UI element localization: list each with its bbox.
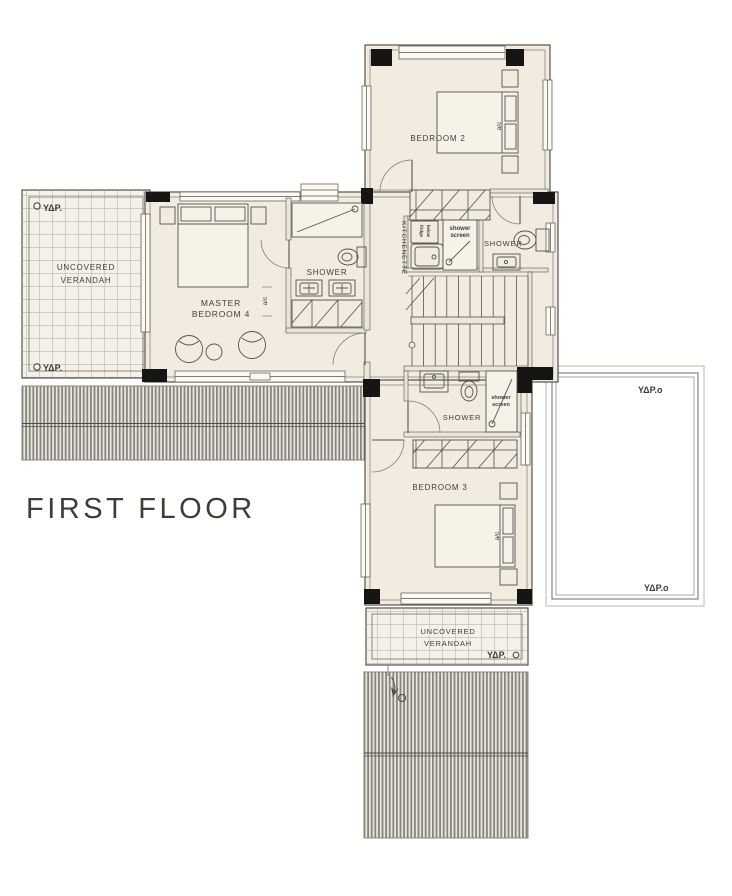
- shower-screen-label-2: screen: [492, 402, 510, 408]
- hydro-label-roof-bottom: ΥΔΡ.ο: [644, 583, 669, 593]
- verandah-left-label-1: UNCOVERED: [57, 263, 115, 272]
- page-title: FIRST FLOOR: [26, 493, 256, 525]
- window: [543, 80, 552, 150]
- shower-screen-label-2: screen: [450, 233, 470, 239]
- window: [401, 593, 491, 604]
- appliance-note-2: below: [426, 225, 431, 238]
- shower-screen-label-1: shower: [491, 395, 511, 401]
- hydro-label-left-top: ΥΔΡ.: [43, 203, 62, 213]
- stair-handrail: [411, 317, 504, 324]
- bottom-deck: [364, 644, 528, 838]
- window: [180, 192, 300, 201]
- ac-label-bed3: a/c: [494, 531, 501, 540]
- verandah-bottom-label-2: VERANDAH: [424, 639, 472, 648]
- hydro-label-roof-top: ΥΔΡ.ο: [638, 385, 663, 395]
- shower-label-bed3: SHOWER: [443, 413, 482, 422]
- window: [399, 46, 505, 59]
- hydro-label-verandah-bottom: ΥΔΡ.: [487, 650, 506, 660]
- left-deck: [22, 386, 368, 460]
- bedroom3-label: BEDROOM 3: [412, 483, 467, 492]
- wardrobe-master: [292, 300, 362, 327]
- window: [362, 86, 371, 150]
- master-bedroom-label-1: MASTER: [201, 298, 241, 308]
- shower-label-bed2: SHOWER: [484, 239, 523, 248]
- hydro-label-left-bottom: ΥΔΡ.: [43, 363, 62, 373]
- bottom-verandah: UNCOVERED VERANDAH ΥΔΡ.: [366, 608, 528, 665]
- window: [361, 504, 370, 577]
- shower-screen-label-1: shower: [449, 226, 471, 232]
- shower-label-master: SHOWER: [307, 268, 348, 277]
- verandah-bottom-label-1: UNCOVERED: [420, 627, 475, 636]
- appliance-note-1: fridge: [419, 225, 424, 238]
- master-bedroom-label-2: BEDROOM 4: [192, 309, 250, 319]
- wardrobe-bedroom2: [410, 190, 490, 220]
- window: [546, 307, 555, 335]
- left-verandah: ΥΔΡ. ΥΔΡ. UNCOVERED VERANDAH: [22, 190, 150, 378]
- window: [175, 371, 345, 382]
- kitchenette-label: KITCHENETTE: [400, 221, 407, 275]
- verandah-left-label-2: VERANDAH: [61, 276, 112, 285]
- ac-label-bed2: a/c: [496, 121, 503, 130]
- floor-plan-drawing: ΥΔΡ. ΥΔΡ. UNCOVERED VERANDAH ΥΔΡ.ο ΥΔΡ.ο: [0, 0, 732, 896]
- window: [301, 184, 338, 201]
- window: [546, 223, 555, 252]
- bedroom2-label: BEDROOM 2: [410, 134, 465, 143]
- wardrobe-bedroom3: [413, 440, 517, 468]
- floor-plan-page: ΥΔΡ. ΥΔΡ. UNCOVERED VERANDAH ΥΔΡ.ο ΥΔΡ.ο: [0, 0, 732, 896]
- window: [521, 413, 530, 465]
- window: [141, 214, 150, 332]
- ac-label-master: a/c: [262, 296, 269, 305]
- flat-roof-outline: ΥΔΡ.ο ΥΔΡ.ο: [546, 366, 704, 606]
